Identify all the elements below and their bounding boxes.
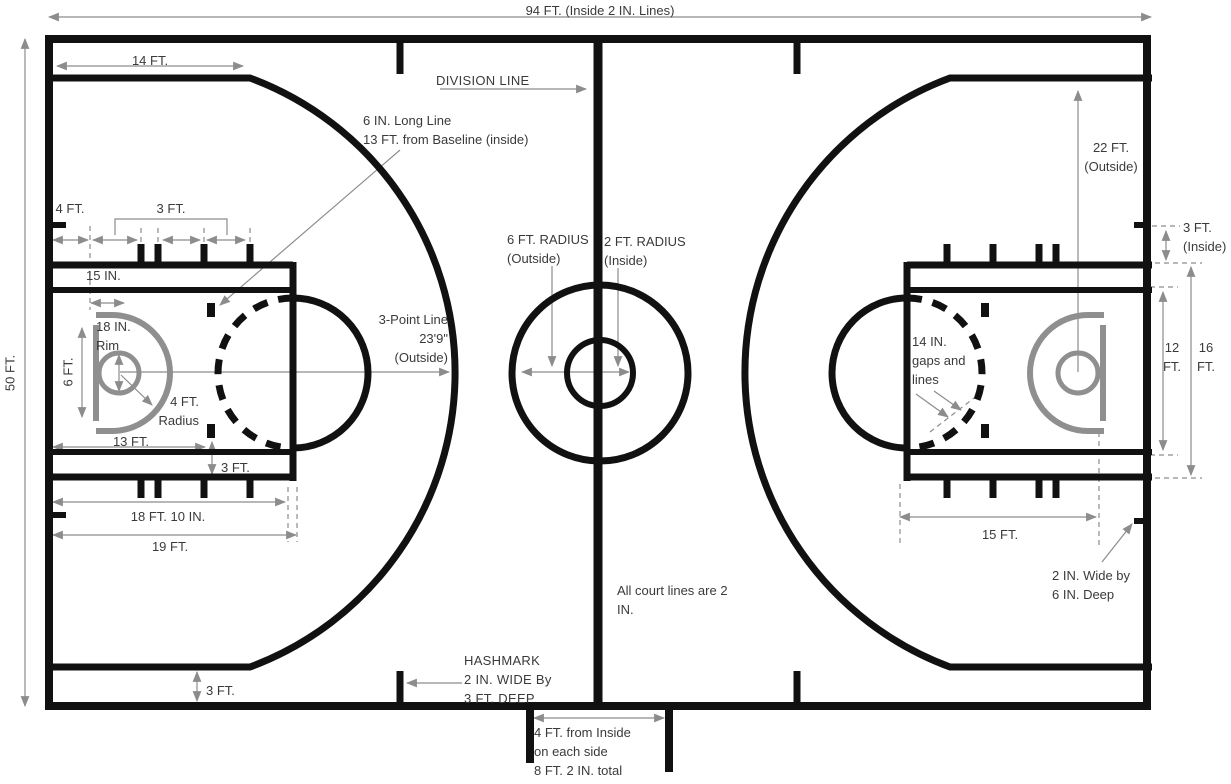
label-15in: 15 IN. (86, 266, 121, 285)
free-throw-circle-right-solid (832, 298, 907, 448)
label-hashmark-note: HASHMARK 2 IN. WIDE By 3 FT. DEEP (464, 651, 552, 708)
label-19ft: 19 FT. (152, 537, 188, 556)
free-throw-circle-left-dashed (218, 298, 293, 448)
label-4ft-radius: 4 FT. Radius (159, 392, 199, 430)
label-2in-wide-6in-deep: 2 IN. Wide by 6 IN. Deep (1052, 566, 1130, 604)
label-6ft-radius: 6 FT. RADIUS (Outside) (507, 230, 589, 268)
label-4ft-total: 4 FT. from Inside on each side 8 FT. 2 I… (534, 723, 631, 780)
label-18in-rim: 18 IN. Rim (96, 317, 131, 355)
label-2ft-radius: 2 FT. RADIUS (Inside) (604, 232, 686, 270)
label-long-line-note: 6 IN. Long Line 13 FT. from Baseline (in… (363, 111, 528, 149)
label-3ft-inside: 3 FT. (Inside) (1183, 218, 1226, 256)
label-3-point-line: 3-Point Line 23'9" (Outside) (379, 310, 448, 367)
label-3ft-hashmark: 3 FT. (206, 681, 235, 700)
label-15ft: 15 FT. (982, 525, 1018, 544)
restricted-arc-right (1030, 315, 1104, 431)
label-3ft-lane: 3 FT. (221, 458, 250, 477)
label-13ft: 13 FT. (113, 432, 149, 451)
label-12ft: 12 FT. (1163, 338, 1181, 376)
basketball-court-diagram: 94 FT. (Inside 2 IN. Lines) 50 FT. 14 FT… (0, 0, 1231, 784)
label-all-lines-note: All court lines are 2 IN. (617, 581, 728, 619)
dimension-arrows (25, 17, 1191, 718)
label-22ft-outside: 22 FT. (Outside) (1084, 138, 1137, 176)
label-3ft-top: 3 FT. (157, 199, 186, 218)
label-14in-gaps: 14 IN. gaps and lines (912, 332, 966, 389)
extension-lines (90, 226, 1202, 547)
label-14ft: 14 FT. (132, 51, 168, 70)
court-lines (48, 35, 1152, 772)
label-4ft: 4 FT. (56, 199, 85, 218)
free-throw-circle-left-solid (293, 298, 368, 448)
label-16ft: 16 FT. (1197, 338, 1215, 376)
label-court-width: 50 FT. (1, 355, 20, 391)
label-court-length: 94 FT. (Inside 2 IN. Lines) (526, 1, 675, 20)
label-division-line: DIVISION LINE (436, 71, 529, 90)
label-6ft: 6 FT. (59, 358, 78, 387)
label-18ft-10in: 18 FT. 10 IN. (131, 507, 205, 526)
